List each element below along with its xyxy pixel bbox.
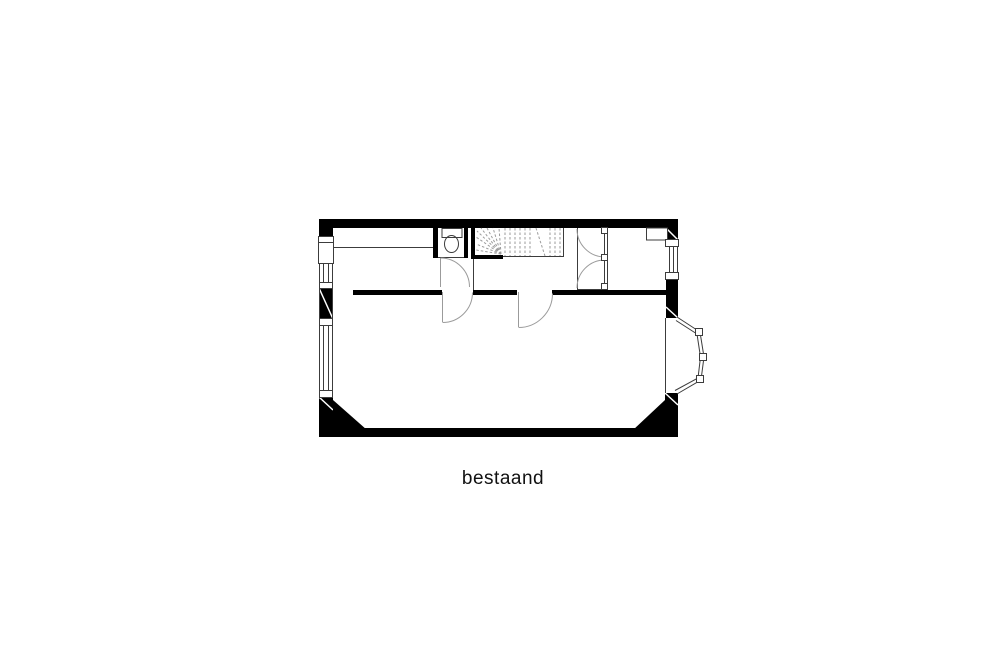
toilet-cistern-icon [442, 229, 462, 238]
plan-caption: bestaand [400, 468, 606, 490]
bottom-wall [319, 428, 678, 437]
winder-tread [499, 228, 501, 254]
stair-bottom-wall [471, 255, 503, 259]
window-sill-node [666, 240, 679, 247]
wc-door-swing-arc [441, 258, 470, 287]
partition-segment-3 [552, 290, 666, 295]
window-frame [319, 237, 334, 264]
floor-plan-canvas: bestaand [0, 0, 1000, 667]
wc-right-wall [464, 228, 468, 258]
door-post-node [602, 255, 608, 261]
bay-mullion-node [700, 354, 707, 361]
top-wall [320, 219, 666, 228]
double-swing-door [577, 228, 608, 291]
door-swing-arc [577, 229, 605, 257]
floor-plan-drawing [0, 0, 1000, 667]
toilet-bowl-icon [445, 236, 459, 253]
bay-window [666, 317, 707, 394]
bottom-left-chamfer [333, 400, 367, 430]
niche [647, 228, 668, 240]
window-sill-node [320, 283, 333, 289]
partition-segment-1 [353, 290, 442, 295]
window-sill-node [666, 273, 679, 280]
bottom-right-chamfer [633, 400, 665, 430]
partition-doors [443, 292, 553, 328]
winder-tread [477, 231, 501, 254]
left-wall-top [319, 219, 333, 237]
wc-left-wall [433, 228, 438, 258]
door-post-node [602, 228, 608, 234]
stair-tread-skewed [536, 228, 545, 256]
door-swing-arc [577, 260, 605, 288]
window-sill-node [320, 391, 333, 398]
door-swing-arc [443, 293, 473, 323]
exterior-walls [319, 219, 678, 437]
bay-mullion-node [697, 376, 704, 383]
bay-mullion-node [696, 329, 703, 336]
window-sill-node [320, 319, 333, 326]
partition-segment-2 [473, 290, 517, 295]
door-post-node [602, 284, 608, 290]
winder-stair [476, 228, 564, 257]
stair-side-wall [471, 228, 475, 259]
door-swing-arc [519, 294, 553, 328]
